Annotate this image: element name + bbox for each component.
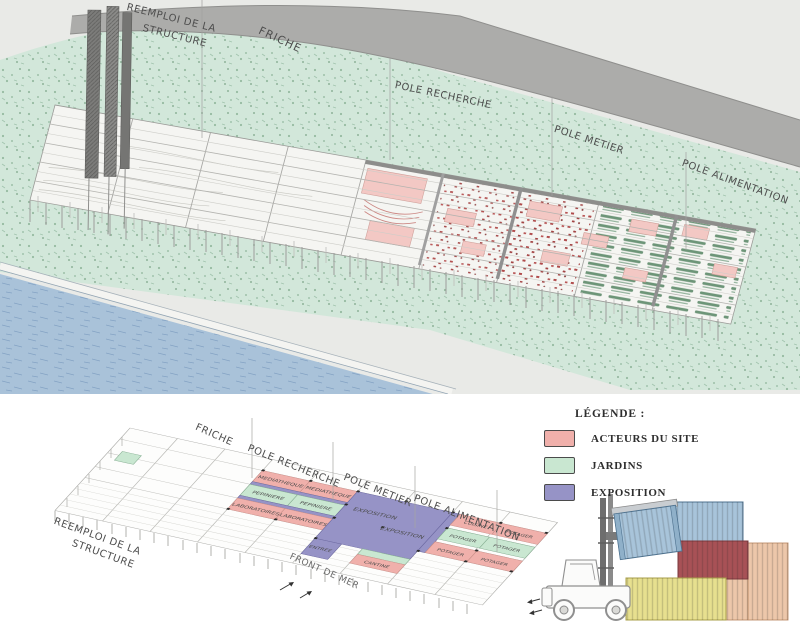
plan-diagram-panel: MEDIATHEQUE MEDIATHEQUE PEPINIERE PEPINI… xyxy=(0,394,800,622)
legend-label-jardins: JARDINS xyxy=(591,460,643,472)
lifted-container xyxy=(611,499,684,560)
forklift-truck xyxy=(542,560,630,620)
axonometric-drawing xyxy=(0,0,800,394)
legend-swatch-jardins xyxy=(544,457,575,474)
legend-swatch-exposition xyxy=(544,484,575,501)
legend-item-jardins: JARDINS xyxy=(544,457,774,474)
forklift-illustration xyxy=(542,494,788,620)
legend-title: LÉGENDE : xyxy=(575,408,774,420)
legend-label-exposition: EXPOSITION xyxy=(591,487,666,499)
legend-swatch-acteurs xyxy=(544,430,575,447)
page: REEMPLOI DE LA STRUCTURE FRICHE POLE REC… xyxy=(0,0,800,622)
legend-item-acteurs: ACTEURS DU SITE xyxy=(544,430,774,447)
zoning-grid: MEDIATHEQUE MEDIATHEQUE PEPINIERE PEPINI… xyxy=(55,428,558,605)
legend-label-acteurs: ACTEURS DU SITE xyxy=(591,433,699,445)
legend-item-exposition: EXPOSITION xyxy=(544,484,774,501)
axonometric-view-panel: REEMPLOI DE LA STRUCTURE FRICHE POLE REC… xyxy=(0,0,800,394)
legend: LÉGENDE : ACTEURS DU SITE JARDINS EXPOSI… xyxy=(544,408,774,501)
